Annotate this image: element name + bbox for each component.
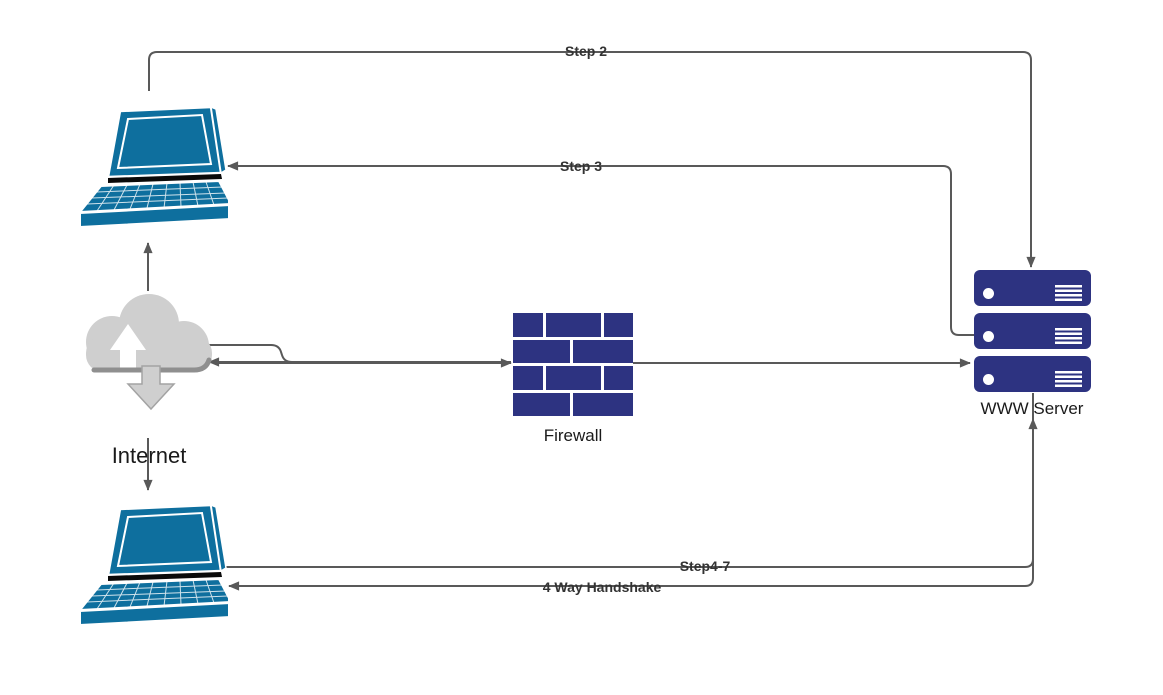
laptop-icon — [80, 107, 231, 227]
server-vents — [1055, 328, 1082, 345]
internet-to-firewall-jog — [206, 345, 330, 362]
brick — [546, 366, 600, 390]
server-vents — [1055, 285, 1082, 302]
brick — [513, 366, 543, 390]
network-diagram-canvas: Step 2 Step 3 Step4-7 4 Way Handshake In… — [0, 0, 1163, 695]
server-led — [983, 331, 994, 342]
step3-label: Step 3 — [560, 158, 602, 174]
brick — [573, 393, 633, 417]
brick-wall-icon — [513, 313, 633, 416]
firewall-label: Firewall — [544, 426, 603, 446]
brick — [604, 313, 633, 337]
www-server-label: WWW Server — [981, 399, 1084, 419]
brick — [513, 340, 570, 364]
step3-connector — [228, 166, 974, 335]
server-vents — [1055, 371, 1082, 388]
server-stack-icon — [974, 270, 1091, 399]
server-led — [983, 288, 994, 299]
server-unit-icon — [974, 356, 1091, 392]
handshake-label: 4 Way Handshake — [543, 579, 662, 595]
laptop-icon — [80, 505, 231, 625]
step2-label: Step 2 — [565, 43, 607, 59]
server-unit-icon — [974, 313, 1091, 349]
internet-label: Internet — [112, 443, 187, 469]
brick — [513, 393, 570, 417]
brick — [513, 313, 543, 337]
server-unit-icon — [974, 270, 1091, 306]
brick — [546, 313, 600, 337]
step4-7-connector — [224, 419, 1033, 567]
step4-7-label: Step4-7 — [680, 558, 731, 574]
cloud-icon — [86, 294, 212, 409]
brick — [604, 366, 633, 390]
brick — [573, 340, 633, 364]
server-led — [983, 374, 994, 385]
handshake-connector — [229, 393, 1033, 586]
